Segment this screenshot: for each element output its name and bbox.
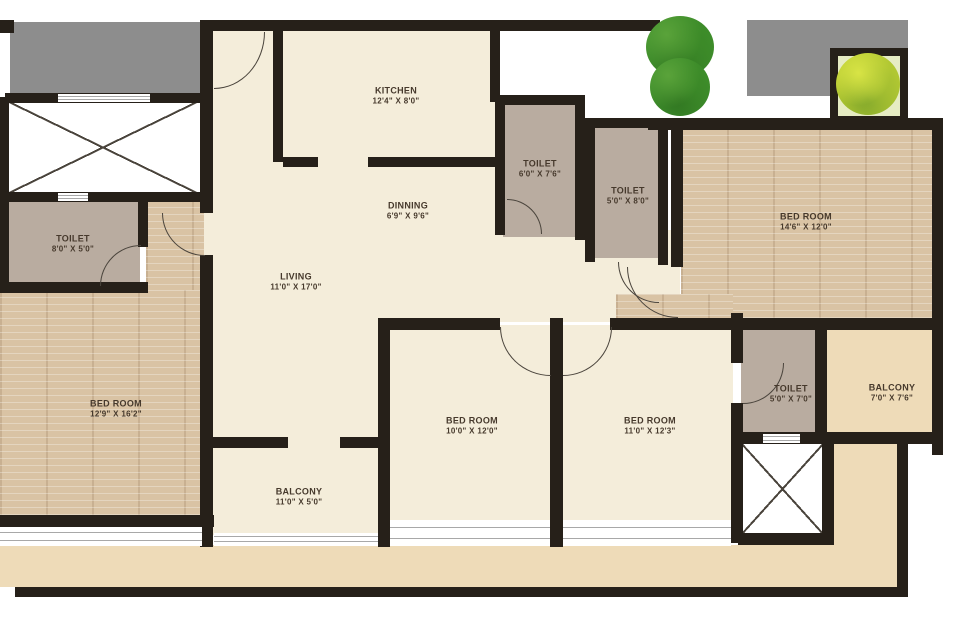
room-label-toilet-left: TOILET 8'0" X 5'0" [52,233,94,254]
room-label-bedroom-left: BED ROOM 12'9" X 16'2" [90,398,142,419]
wall [202,437,288,448]
wall [897,443,908,597]
room-label-dinning: DINNING 6'9" X 9'6" [387,200,429,221]
wall [495,95,585,105]
room-dims: 14'6" X 12'0" [780,223,832,233]
wall [200,20,660,31]
wall [822,443,834,545]
wall [283,157,318,167]
wall [585,118,595,262]
floor-balcony-band [0,545,899,587]
wall [738,533,834,545]
floor-plan: KITCHEN 12'4" X 8'0" DINNING 6'9" X 9'6"… [0,0,957,625]
room-dims: 11'0" X 17'0" [270,283,321,293]
room-name: KITCHEN [372,85,419,96]
room-dims: 7'0" X 7'6" [869,394,916,404]
room-name: TOILET [52,233,94,244]
wall [610,318,943,330]
window [58,94,150,102]
room-name: BALCONY [276,486,323,497]
window [214,533,378,546]
wall [273,30,283,162]
room-name: DINNING [387,200,429,211]
room-label-balcony-right: BALCONY 7'0" X 7'6" [869,382,916,403]
window [763,434,800,443]
slab-top-left [10,22,200,93]
room-label-balcony-bottom: BALCONY 11'0" X 5'0" [276,486,323,507]
room-label-bedroom-master: BED ROOM 14'6" X 12'0" [780,211,832,232]
room-name: TOILET [607,185,649,196]
room-label-toilet-top: TOILET 6'0" X 7'6" [519,158,561,179]
wall [0,515,214,527]
room-dims: 8'0" X 5'0" [52,245,94,255]
room-dims: 5'0" X 7'0" [770,395,812,405]
wall [378,318,390,547]
wall [200,255,213,547]
wall [932,118,943,455]
room-name: BED ROOM [624,415,676,426]
wall [731,403,743,543]
wall [340,437,378,448]
room-label-living: LIVING 11'0" X 17'0" [270,271,321,292]
wall [0,20,14,33]
room-name: BED ROOM [446,415,498,426]
wall [815,325,827,443]
lift-shaft-box [9,102,197,193]
room-dims: 11'0" X 5'0" [276,498,323,508]
wall [575,95,585,240]
room-dims: 6'9" X 9'6" [387,212,429,222]
wall [658,118,668,265]
room-label-bedroom-right2: BED ROOM 11'0" X 12'3" [624,415,676,436]
room-label-toilet-mid: TOILET 5'0" X 8'0" [607,185,649,206]
room-name: TOILET [519,158,561,169]
window [58,193,88,201]
room-dims: 12'9" X 16'2" [90,410,142,420]
window [390,520,550,546]
wall [15,587,908,597]
wall [368,157,498,167]
floor-balcony-right [825,323,934,434]
wall [378,318,500,330]
room-dims: 11'0" X 12'3" [624,427,676,437]
tree [650,58,710,116]
wall [495,95,505,235]
room-name: LIVING [270,271,321,282]
duct-shaft-box [741,443,824,535]
room-name: BED ROOM [780,211,832,222]
room-dims: 5'0" X 8'0" [607,197,649,207]
room-label-bedroom-mid: BED ROOM 10'0" X 12'0" [446,415,498,436]
wall [671,130,683,267]
wall [490,30,500,102]
wall [200,20,213,213]
room-label-toilet-right: TOILET 5'0" X 7'0" [770,383,812,404]
room-name: BED ROOM [90,398,142,409]
room-dims: 12'4" X 8'0" [372,97,419,107]
window [0,527,202,546]
tree [836,53,900,115]
room-label-kitchen: KITCHEN 12'4" X 8'0" [372,85,419,106]
room-name: TOILET [770,383,812,394]
wall [138,202,148,247]
wall [5,192,205,202]
room-dims: 6'0" X 7'6" [519,170,561,180]
room-name: BALCONY [869,382,916,393]
wall [550,318,563,547]
room-dims: 10'0" X 12'0" [446,427,498,437]
window [563,520,731,546]
wall [731,313,743,363]
